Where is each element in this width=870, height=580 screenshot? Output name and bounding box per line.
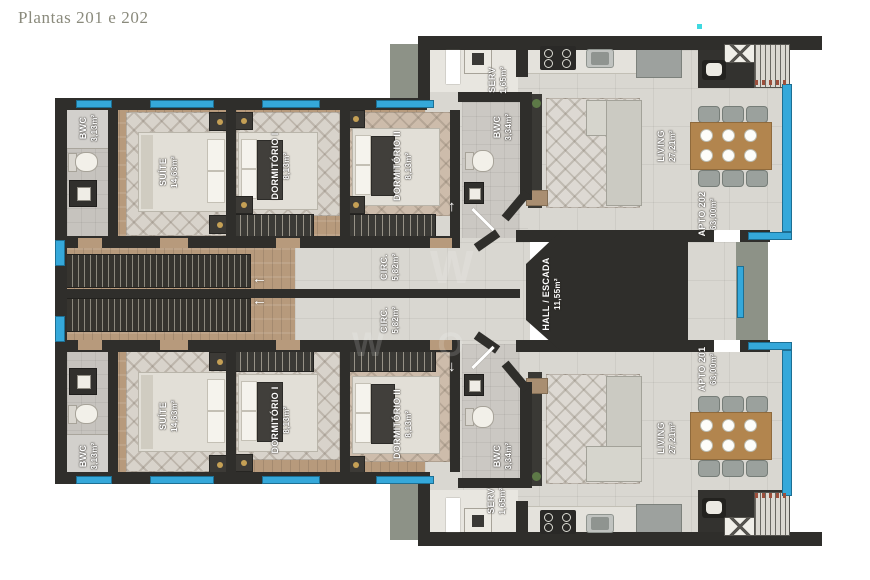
window-dorm1-201 bbox=[262, 476, 320, 484]
wall-bwc-living-202 bbox=[520, 100, 532, 200]
room-label-hall-escada: HALL / ESCADA11,55m² bbox=[541, 257, 563, 330]
wall-kitchen-divider-202 bbox=[516, 45, 528, 77]
kitchen-sink-201 bbox=[586, 514, 614, 533]
toilet-bwc-suite-202 bbox=[75, 152, 98, 172]
entry-arrow-corridor-201: ← bbox=[252, 296, 267, 306]
room-label-dorm2-201: DORMITÓRIO II8,13m² bbox=[392, 389, 414, 459]
rack-hooks-201 bbox=[755, 493, 787, 498]
wall-corridor-202 bbox=[55, 236, 460, 248]
dining-chair-201 bbox=[722, 460, 744, 477]
window-suite-202 bbox=[150, 100, 214, 108]
plate bbox=[722, 149, 735, 162]
drying-rack-201 bbox=[754, 492, 790, 536]
door-leaf-serv-201 bbox=[446, 498, 460, 532]
room-label-bwc-suite-201: BWC3,13m² bbox=[78, 442, 100, 469]
room-label-circ-202: CIRC.5,82m² bbox=[379, 253, 401, 280]
closet-corridor-202 bbox=[65, 254, 251, 288]
dining-chair-201 bbox=[698, 460, 720, 477]
dining-chair-201 bbox=[698, 396, 720, 413]
sofa-202 bbox=[606, 100, 642, 206]
plate bbox=[722, 439, 735, 452]
bed-foot-band-suite-201 bbox=[141, 375, 153, 449]
floor-tile-landing bbox=[686, 242, 738, 340]
wall-serv-left-202 bbox=[418, 36, 430, 104]
plate bbox=[744, 149, 757, 162]
unit-label-apto-201: APTO 20163,00m² bbox=[697, 347, 719, 392]
laundry-tank-202 bbox=[724, 44, 756, 63]
toilet-bwc-social-202 bbox=[472, 150, 494, 172]
closet-corridor-201 bbox=[65, 298, 251, 332]
pillow-suite-202-a bbox=[207, 139, 225, 171]
glass-door-landing bbox=[737, 266, 744, 318]
nightstand-dorm1-202-a bbox=[234, 112, 253, 130]
room-label-dorm1-201: DORMITÓRIO I8,13m² bbox=[270, 386, 292, 453]
plate bbox=[744, 419, 757, 432]
kitchen-sink-202 bbox=[586, 49, 614, 68]
vanity-bwc-suite-201 bbox=[69, 368, 97, 395]
plate bbox=[700, 419, 713, 432]
dining-chair-201 bbox=[746, 396, 768, 413]
room-label-bwc-suite-202: BWC3,13m² bbox=[78, 114, 100, 141]
room-label-serv-201: SERV1,65m² bbox=[486, 487, 508, 514]
door-bwc-suite-202 bbox=[78, 238, 102, 248]
wall-suite-dorm1-201 bbox=[226, 346, 236, 472]
plate bbox=[700, 149, 713, 162]
vanity-bwc-social-201 bbox=[464, 374, 484, 396]
floor-plan-canvas: Plantas 201 e 202 bbox=[0, 0, 870, 580]
room-label-suite-202: SUÍTE14,63m² bbox=[158, 156, 180, 188]
page-title: Plantas 201 e 202 bbox=[18, 8, 149, 28]
room-label-dorm1-202: DORMITÓRIO I8,13m² bbox=[270, 132, 292, 199]
window-dorm2-201 bbox=[376, 476, 434, 484]
entry-arrow-dorm2-201: ↓ bbox=[448, 362, 456, 372]
glass-wall-living-202 bbox=[782, 84, 792, 232]
stove-201 bbox=[540, 510, 576, 534]
window-bwc-suite-201 bbox=[76, 476, 112, 484]
bed-foot-band-suite-202 bbox=[141, 135, 153, 209]
toilet-bwc-suite-201 bbox=[75, 404, 98, 424]
window-dorm2-202 bbox=[376, 100, 434, 108]
wall-dorm1-dorm2-202 bbox=[340, 110, 350, 236]
door-dorm2-201 bbox=[430, 340, 452, 350]
door-dorm1-202 bbox=[276, 238, 300, 248]
vanity-bwc-suite-202 bbox=[69, 180, 97, 207]
sofa-chaise-201 bbox=[586, 446, 642, 482]
wall-center-divider bbox=[55, 289, 520, 298]
slab-outside-201 bbox=[390, 484, 418, 540]
room-label-living-202: LIVING27,21m² bbox=[656, 130, 678, 162]
plate bbox=[744, 439, 757, 452]
laundry-tank-201 bbox=[724, 517, 756, 536]
vanity-bwc-social-202 bbox=[464, 182, 484, 204]
dining-chair-202 bbox=[722, 170, 744, 187]
room-label-serv-202: SERV1,65m² bbox=[487, 66, 509, 93]
room-label-bwc-social-201: BWC3,34m² bbox=[492, 442, 514, 469]
wall-bwc-living-201 bbox=[520, 382, 532, 480]
entry-arrow-dorm2-202: ↑ bbox=[448, 202, 456, 212]
wall-dorm1-dorm2-201 bbox=[340, 346, 350, 472]
entry-arrow-corridor-202: ← bbox=[252, 274, 267, 284]
pillow-dorm2-202-b bbox=[355, 165, 371, 195]
pillow-dorm1-201-a bbox=[241, 381, 257, 411]
pillow-dorm2-201-b bbox=[355, 413, 371, 443]
stair-center-rail bbox=[568, 288, 676, 294]
unit-label-apto-202: APTO 20263,00m² bbox=[697, 192, 719, 237]
room-label-bwc-social-202: BWC3,34m² bbox=[492, 113, 514, 140]
wall-suite-dorm1-202 bbox=[226, 110, 236, 236]
glass-door-living-201 bbox=[748, 342, 792, 350]
pillow-dorm2-202-a bbox=[355, 135, 371, 165]
door-suite-202 bbox=[160, 238, 188, 248]
service-sink-202 bbox=[702, 60, 726, 80]
pillow-suite-201-b bbox=[207, 411, 225, 443]
window-suite-201 bbox=[150, 476, 214, 484]
pillow-dorm2-201-a bbox=[355, 383, 371, 413]
plant-202 bbox=[532, 99, 541, 108]
room-label-living-201: LIVING27,21m² bbox=[656, 422, 678, 454]
dining-chair-202 bbox=[698, 170, 720, 187]
window-dorm1-202 bbox=[262, 100, 320, 108]
dining-chair-202 bbox=[698, 106, 720, 123]
glass-door-living-202 bbox=[748, 232, 792, 240]
wall-bwc-suite-202 bbox=[108, 110, 118, 236]
dining-chair-202 bbox=[746, 170, 768, 187]
pillow-dorm1-201-b bbox=[241, 411, 257, 441]
rack-hooks-202 bbox=[755, 80, 787, 85]
door-dorm1-201 bbox=[276, 340, 300, 350]
dining-chair-202 bbox=[746, 106, 768, 123]
wall-kitchen-divider-201 bbox=[516, 501, 528, 533]
toilet-bwc-social-201 bbox=[472, 406, 494, 428]
pillow-dorm1-202-b bbox=[241, 169, 257, 199]
dining-chair-201 bbox=[746, 460, 768, 477]
door-dorm2-202 bbox=[430, 238, 452, 248]
window-corridor-201 bbox=[55, 316, 65, 342]
plate bbox=[722, 419, 735, 432]
dining-chair-201 bbox=[722, 396, 744, 413]
plate bbox=[744, 129, 757, 142]
plate bbox=[722, 129, 735, 142]
wall-bwc-suite-201 bbox=[108, 346, 118, 472]
plate bbox=[700, 129, 713, 142]
door-bwc-suite-201 bbox=[78, 340, 102, 350]
nightstand-dorm1-202-b bbox=[234, 196, 253, 214]
stove-202 bbox=[540, 46, 576, 70]
slab-outside-202 bbox=[390, 44, 418, 100]
service-sink-201 bbox=[702, 498, 726, 518]
glass-wall-living-201 bbox=[782, 350, 792, 496]
room-label-circ-201: CIRC.5,82m² bbox=[379, 306, 401, 333]
window-bwc-suite-202 bbox=[76, 100, 112, 108]
pillow-suite-202-b bbox=[207, 171, 225, 203]
room-label-dorm2-202: DORMITÓRIO II8,13m² bbox=[392, 131, 414, 201]
nightstand-dorm1-201-b bbox=[234, 454, 253, 472]
door-suite-201 bbox=[160, 340, 188, 350]
door-leaf-serv-202 bbox=[446, 50, 460, 84]
window-corridor-202 bbox=[55, 240, 65, 266]
cyan-dot-marker bbox=[697, 24, 702, 29]
wall-dorm2-bwc-202 bbox=[450, 110, 460, 242]
dining-chair-202 bbox=[722, 106, 744, 123]
plate bbox=[700, 439, 713, 452]
pillow-dorm1-202-a bbox=[241, 139, 257, 169]
plant-201 bbox=[532, 472, 541, 481]
pillow-suite-201-a bbox=[207, 379, 225, 411]
room-label-suite-201: SUÍTE14,63m² bbox=[158, 400, 180, 432]
